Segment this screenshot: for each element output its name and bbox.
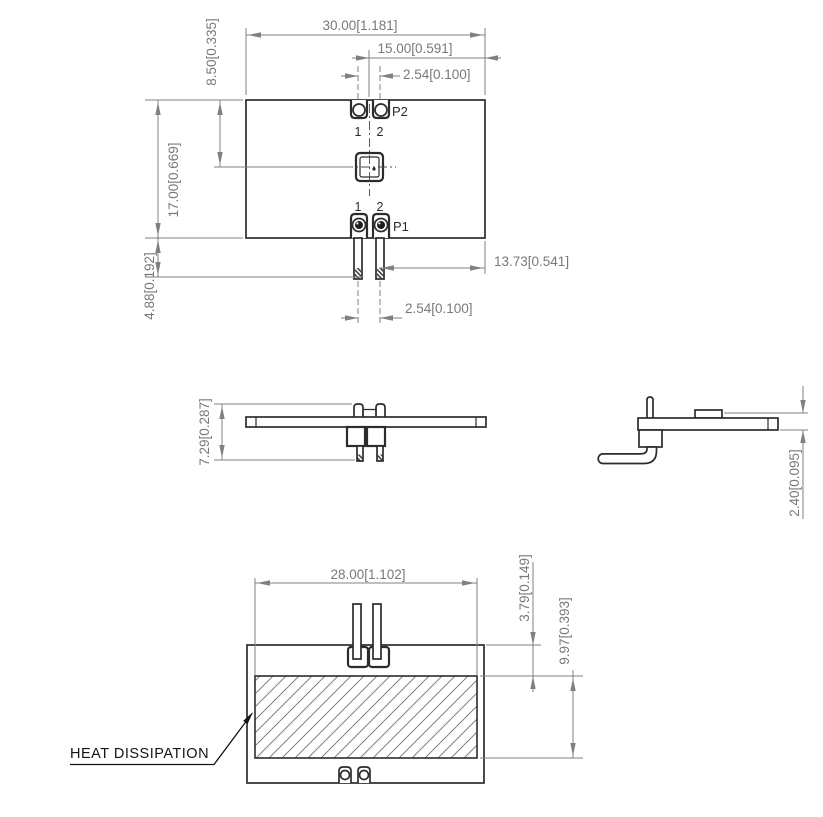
arrowhead: [155, 223, 160, 236]
arrowhead: [217, 152, 222, 165]
side-connector-block: [639, 430, 662, 447]
front-pin2-tip: [378, 455, 383, 461]
front-pin1-loop: [354, 404, 363, 417]
side-top-pin: [647, 397, 653, 418]
arrowhead: [800, 430, 805, 443]
side-led-block: [695, 410, 722, 418]
arrowhead: [530, 676, 535, 689]
bottom-hole1: [341, 771, 350, 780]
side-view-dimensions: 2.40[0.095]: [724, 386, 808, 519]
p2-pin1-number: 1: [355, 125, 362, 139]
arrowhead: [345, 73, 358, 78]
side-view: [598, 397, 778, 464]
p1-pin1-number: 1: [355, 200, 362, 214]
p2-pin1-hole: [353, 104, 365, 116]
arrowhead: [380, 315, 393, 320]
arrowhead: [470, 32, 483, 37]
front-board-edge: [246, 417, 486, 427]
front-connector-block2: [367, 427, 385, 446]
front-pin1-tip: [358, 455, 363, 461]
drawing-svg: P2 1 2 1 2 P1 30.00[1.181] 15.00[0.591]: [0, 0, 823, 817]
arrowhead: [217, 102, 222, 115]
bottom-view: [247, 604, 484, 783]
p1-pin2-highlight: [378, 222, 380, 224]
dim-thickness: 2.40[0.095]: [787, 449, 802, 517]
p2-label: P2: [392, 104, 408, 119]
technical-drawing: P2 1 2 1 2 P1 30.00[1.181] 15.00[0.591]: [0, 0, 823, 817]
arrowhead: [155, 240, 160, 253]
dim-pin-pitch-top: 2.54[0.100]: [403, 67, 471, 82]
p1-pin2-number: 2: [377, 200, 384, 214]
heat-dissipation-label: HEAT DISSIPATION: [70, 746, 209, 762]
dim-pad-height: 9.97[0.393]: [557, 597, 572, 665]
arrowhead: [470, 265, 483, 270]
front-view-dimensions: 7.29[0.287]: [197, 398, 355, 466]
p2-pin2-hole: [375, 104, 387, 116]
front-pin2-loop: [376, 404, 385, 417]
arrowhead: [462, 580, 475, 585]
dim-front-height: 7.29[0.287]: [197, 398, 212, 466]
bottom-pin1-lead: [353, 604, 361, 659]
dim-center-to-edge: 15.00[0.591]: [377, 41, 452, 56]
dim-overall-width: 30.00[1.181]: [322, 18, 397, 33]
dim-pad-offset: 3.79[0.149]: [517, 554, 532, 622]
dim-pin-to-edge: 13.73[0.541]: [494, 254, 569, 269]
dim-pin-length: 4.88[0.192]: [142, 252, 157, 320]
arrowhead: [356, 55, 369, 60]
arrowhead: [570, 678, 575, 691]
dim-led-offset: 8.50[0.335]: [204, 18, 219, 86]
bottom-hole2: [360, 771, 369, 780]
arrowhead: [570, 743, 575, 756]
dim-pin-pitch-bottom: 2.54[0.100]: [405, 301, 473, 316]
dim-overall-depth: 17.00[0.669]: [166, 142, 181, 217]
arrowhead: [380, 73, 393, 78]
side-board-edge: [638, 418, 778, 430]
arrowhead: [485, 55, 498, 60]
top-view: P2 1 2 1 2 P1: [246, 100, 485, 279]
p1-pin2-pin: [377, 221, 385, 229]
dim-pad-width: 28.00[1.102]: [330, 567, 405, 582]
arrowhead: [155, 102, 160, 115]
led-cathode-dot: [372, 167, 375, 170]
arrowhead: [345, 315, 358, 320]
arrowhead: [530, 632, 535, 645]
p1-pin1-highlight: [356, 222, 358, 224]
side-bent-pin: [598, 447, 656, 464]
arrowhead: [800, 400, 805, 413]
heat-dissipation-area: [255, 676, 477, 758]
p1-label: P1: [393, 219, 409, 234]
bottom-pin2-lead: [373, 604, 381, 659]
p2-pin2-number: 2: [377, 125, 384, 139]
front-spacer: [363, 410, 376, 418]
arrowhead: [219, 445, 224, 458]
p1-pin1-pin: [355, 221, 363, 229]
arrowhead: [219, 406, 224, 419]
arrowhead: [257, 580, 270, 585]
arrowhead: [248, 32, 261, 37]
front-view: [246, 404, 486, 461]
pin2-lead-tip: [377, 268, 383, 278]
front-connector-block1: [347, 427, 365, 446]
